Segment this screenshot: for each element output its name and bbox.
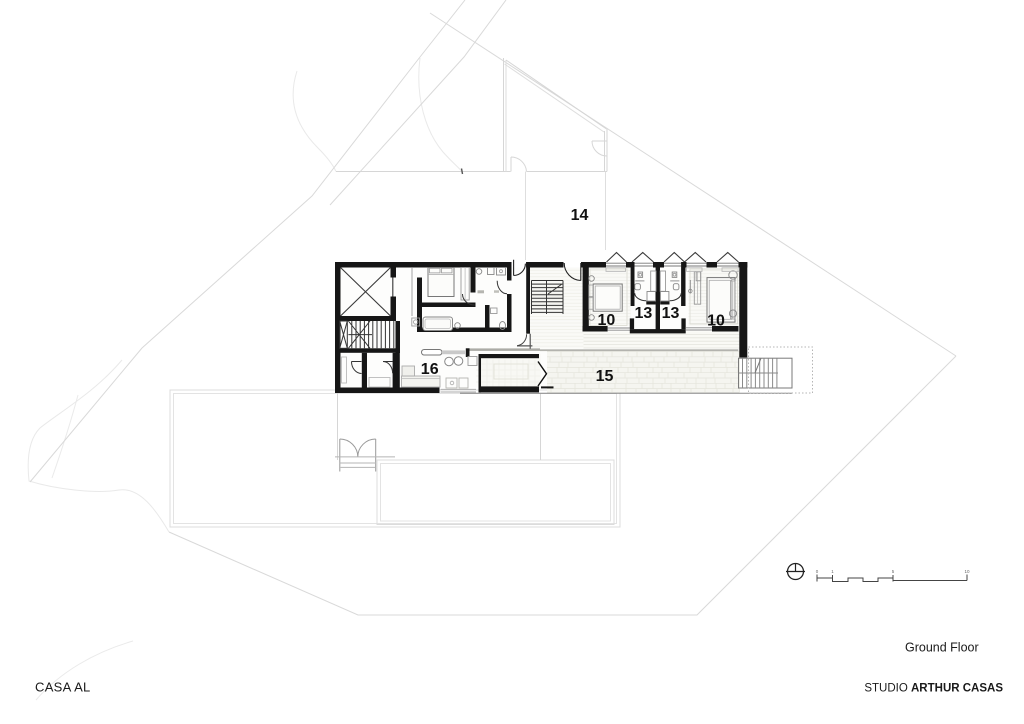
svg-text:Ground Floor: Ground Floor [905,641,979,655]
svg-text:CASA AL: CASA AL [35,680,91,695]
svg-text:10: 10 [598,312,616,329]
svg-text:10: 10 [964,569,970,574]
svg-text:15: 15 [596,368,614,385]
svg-text:STUDIO ARTHUR CASAS: STUDIO ARTHUR CASAS [864,683,1003,695]
svg-text:10: 10 [707,312,725,329]
svg-text:13: 13 [662,305,680,322]
svg-text:16: 16 [421,361,439,378]
svg-text:14: 14 [571,207,589,224]
svg-text:13: 13 [635,305,653,322]
